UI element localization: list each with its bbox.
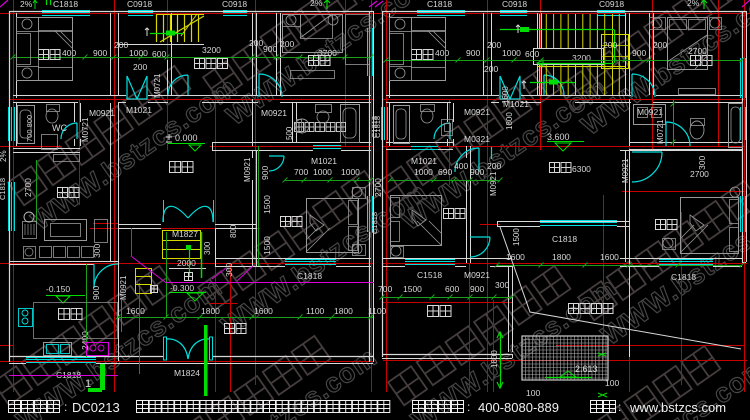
- svg-text:2%: 2%: [687, 0, 700, 8]
- svg-text:300: 300: [495, 280, 509, 290]
- svg-text:M1824: M1824: [174, 368, 200, 378]
- svg-text:C1818: C1818: [427, 0, 452, 9]
- svg-text:M0921: M0921: [119, 275, 128, 300]
- svg-text:400-8080-889: 400-8080-889: [478, 400, 559, 415]
- svg-text::: :: [467, 400, 470, 414]
- svg-text:690: 690: [438, 167, 452, 177]
- svg-text:800: 800: [229, 224, 238, 238]
- svg-text:M0721: M0721: [656, 119, 665, 144]
- svg-text:1800: 1800: [552, 252, 571, 262]
- svg-text:900: 900: [91, 286, 101, 300]
- svg-text:2700: 2700: [373, 178, 383, 197]
- svg-text:100: 100: [605, 378, 619, 388]
- svg-text:M0321: M0321: [464, 134, 490, 144]
- svg-text:C0918: C0918: [127, 0, 152, 9]
- svg-text:M1021: M1021: [411, 156, 437, 166]
- svg-text:200: 200: [653, 40, 667, 50]
- svg-text:1500: 1500: [403, 284, 422, 294]
- svg-text:M0921: M0921: [89, 108, 115, 118]
- svg-text:200: 200: [484, 64, 498, 74]
- svg-text::: :: [618, 400, 621, 414]
- svg-text:900: 900: [260, 166, 270, 180]
- svg-text:1000: 1000: [129, 48, 148, 58]
- svg-text:2.613: 2.613: [575, 364, 598, 374]
- svg-text:500: 500: [285, 126, 294, 140]
- svg-text::: :: [64, 400, 67, 414]
- svg-text:C1818: C1818: [0, 178, 7, 200]
- svg-text:2700: 2700: [23, 178, 33, 197]
- svg-text:2700: 2700: [688, 46, 707, 56]
- svg-text:2400: 2400: [80, 331, 90, 350]
- svg-text:1500: 1500: [262, 195, 272, 214]
- svg-text:0.000: 0.000: [175, 133, 198, 143]
- svg-text:1000: 1000: [502, 48, 521, 58]
- svg-text:1600: 1600: [126, 306, 145, 316]
- svg-text:M0921: M0921: [464, 107, 490, 117]
- svg-text:400: 400: [454, 161, 468, 171]
- svg-text:M0921: M0921: [261, 108, 287, 118]
- svg-text:3200: 3200: [572, 53, 591, 63]
- svg-text:2%: 2%: [0, 150, 8, 162]
- svg-text:1: 1: [85, 378, 91, 390]
- svg-text:C1818: C1818: [373, 116, 382, 138]
- svg-text:400: 400: [62, 48, 76, 58]
- svg-text:www.bstzcs.com: www.bstzcs.com: [629, 400, 726, 415]
- svg-text:C1518: C1518: [417, 270, 442, 280]
- svg-text:C1818: C1818: [297, 271, 322, 281]
- svg-text:1800: 1800: [505, 112, 514, 130]
- svg-text:6300: 6300: [572, 164, 591, 174]
- svg-text:1500: 1500: [262, 236, 272, 255]
- svg-text:700: 700: [378, 284, 392, 294]
- svg-text:200: 200: [133, 62, 147, 72]
- svg-text:200: 200: [249, 38, 263, 48]
- svg-text:1100: 1100: [368, 306, 387, 316]
- svg-text:M0721: M0721: [81, 117, 90, 142]
- svg-text:1000: 1000: [414, 167, 433, 177]
- svg-text:900: 900: [470, 167, 484, 177]
- svg-text:C1818: C1818: [53, 0, 78, 9]
- svg-text:200: 200: [114, 40, 128, 50]
- svg-text:1600: 1600: [600, 252, 619, 262]
- svg-text:2%: 2%: [20, 0, 33, 9]
- svg-text:M1021: M1021: [126, 105, 152, 115]
- svg-text:1600: 1600: [254, 306, 273, 316]
- svg-text:C0918: C0918: [599, 0, 624, 9]
- svg-text:M0921: M0921: [243, 157, 252, 182]
- svg-text:M0921: M0921: [637, 107, 663, 117]
- svg-text:1000: 1000: [313, 167, 332, 177]
- svg-text:1800: 1800: [334, 306, 353, 316]
- svg-text:900: 900: [93, 48, 107, 58]
- svg-text:3.600: 3.600: [547, 132, 570, 142]
- svg-text:300: 300: [203, 241, 212, 255]
- svg-text:-0.300: -0.300: [170, 283, 194, 293]
- svg-text:600: 600: [445, 284, 459, 294]
- svg-text:C1818: C1818: [370, 212, 379, 234]
- svg-text:C0918: C0918: [222, 0, 247, 9]
- svg-text:700: 700: [294, 167, 308, 177]
- svg-text:2%: 2%: [310, 0, 323, 8]
- svg-text:1500: 1500: [512, 228, 521, 246]
- svg-text:900: 900: [466, 48, 480, 58]
- svg-text:2000: 2000: [177, 258, 196, 268]
- svg-text:200: 200: [487, 161, 501, 171]
- svg-text:M1021: M1021: [503, 99, 529, 109]
- svg-text:-0.150: -0.150: [46, 284, 70, 294]
- svg-text:1100: 1100: [306, 306, 325, 316]
- svg-text:C1818: C1818: [552, 234, 577, 244]
- svg-text:1800: 1800: [490, 350, 499, 368]
- svg-text:1000: 1000: [341, 167, 360, 177]
- svg-text:2700: 2700: [690, 169, 709, 179]
- svg-text:300: 300: [224, 263, 234, 277]
- svg-text:400: 400: [435, 48, 449, 58]
- svg-text:C0918: C0918: [502, 0, 527, 9]
- svg-text:900: 900: [263, 44, 277, 54]
- svg-text:900: 900: [470, 284, 484, 294]
- svg-text:600: 600: [152, 49, 166, 59]
- svg-text:200: 200: [487, 40, 501, 50]
- svg-text:300: 300: [697, 156, 707, 170]
- svg-text:100: 100: [526, 388, 540, 398]
- svg-text:M1021: M1021: [311, 156, 337, 166]
- svg-text:DC0213: DC0213: [72, 400, 120, 415]
- svg-text:WC: WC: [52, 123, 67, 133]
- svg-text:M0921: M0921: [621, 158, 630, 183]
- svg-text:M0921: M0921: [489, 171, 498, 196]
- svg-text:600: 600: [525, 49, 539, 59]
- svg-text:M0921: M0921: [464, 270, 490, 280]
- svg-text:C1818: C1818: [671, 272, 696, 282]
- svg-text:M0721: M0721: [153, 73, 162, 98]
- svg-text:3200: 3200: [202, 45, 221, 55]
- svg-text:900: 900: [632, 48, 646, 58]
- svg-text:200: 200: [603, 40, 617, 50]
- svg-text:1800: 1800: [201, 306, 220, 316]
